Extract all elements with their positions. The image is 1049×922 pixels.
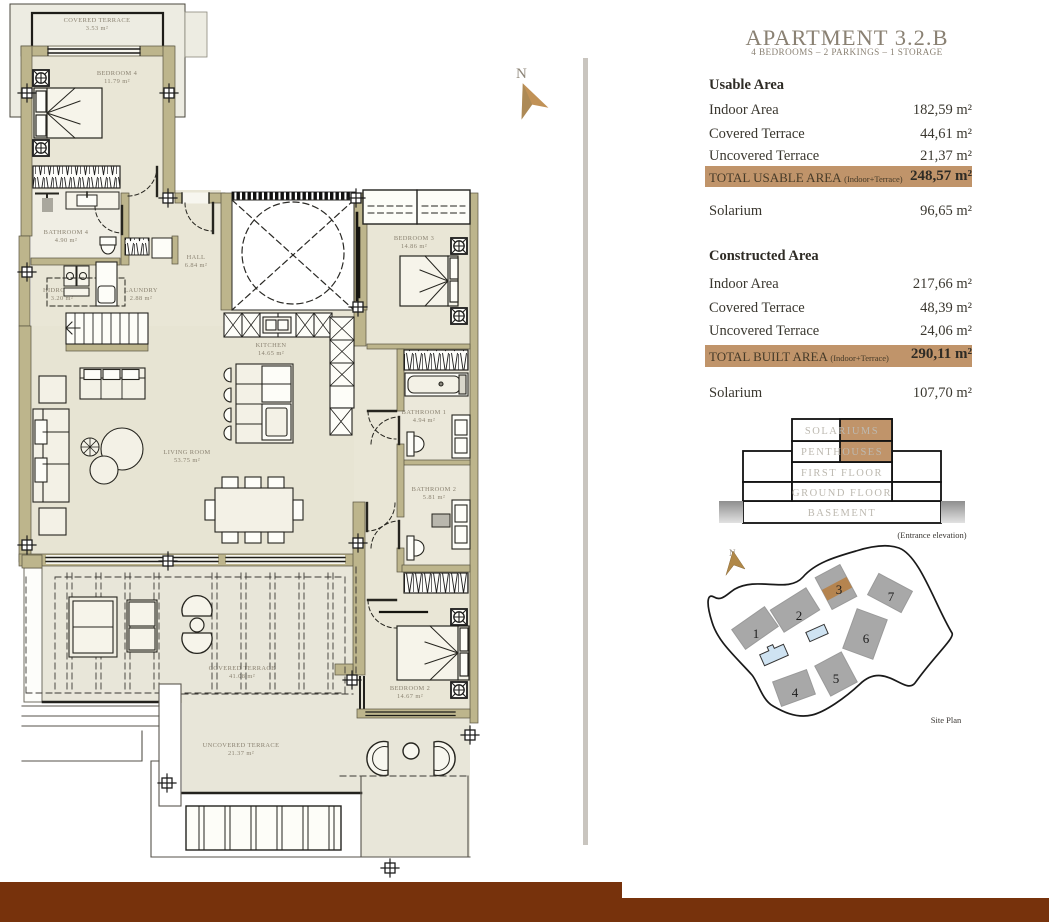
svg-text:HALL: HALL <box>187 254 206 261</box>
svg-text:2.88 m²: 2.88 m² <box>130 295 152 302</box>
svg-text:BATHROOM 2: BATHROOM 2 <box>412 486 457 493</box>
svg-text:N: N <box>516 66 527 82</box>
svg-text:6.84 m²: 6.84 m² <box>185 262 207 269</box>
svg-text:5.81 m²: 5.81 m² <box>423 494 445 501</box>
svg-text:11.79 m²: 11.79 m² <box>104 78 130 85</box>
svg-text:14.65 m²: 14.65 m² <box>258 350 284 357</box>
svg-text:BEDROOM 3: BEDROOM 3 <box>394 235 434 242</box>
svg-text:14.67 m²: 14.67 m² <box>397 693 423 700</box>
svg-text:21.37 m²: 21.37 m² <box>228 750 254 757</box>
svg-text:UNCOVERED TERRACE: UNCOVERED TERRACE <box>203 742 280 749</box>
svg-text:KITCHEN: KITCHEN <box>256 342 287 349</box>
svg-text:3.53 m²: 3.53 m² <box>86 25 108 32</box>
svg-text:4.90 m²: 4.90 m² <box>55 237 77 244</box>
svg-text:53.75 m²: 53.75 m² <box>174 457 200 464</box>
svg-text:4.94 m²: 4.94 m² <box>413 417 435 424</box>
svg-text:41.08 m²: 41.08 m² <box>229 673 255 680</box>
svg-text:COVERED TERRACE: COVERED TERRACE <box>64 17 131 24</box>
svg-text:BEDROOM 4: BEDROOM 4 <box>97 70 138 77</box>
svg-text:BATHROOM 1: BATHROOM 1 <box>402 409 447 416</box>
svg-text:COVERED TERRACE: COVERED TERRACE <box>209 665 276 672</box>
svg-text:BEDROOM 2: BEDROOM 2 <box>390 685 430 692</box>
svg-text:LAUNDRY: LAUNDRY <box>124 287 158 294</box>
svg-text:BATHROOM 4: BATHROOM 4 <box>44 229 89 236</box>
svg-text:14.86 m²: 14.86 m² <box>401 243 427 250</box>
svg-text:LIVING ROOM: LIVING ROOM <box>163 449 210 456</box>
